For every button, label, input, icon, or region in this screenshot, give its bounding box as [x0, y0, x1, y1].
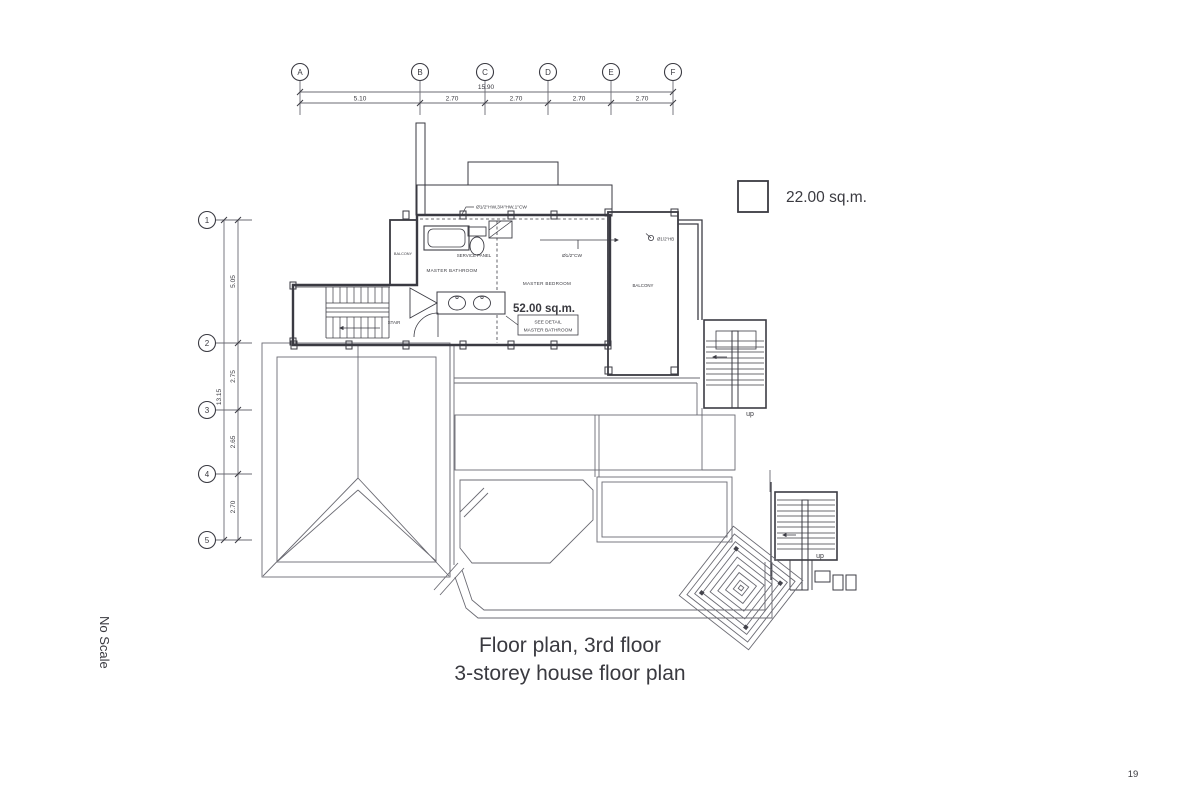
grid-bubble-A: A [292, 64, 309, 81]
planter [833, 575, 843, 590]
drawing-title: Floor plan, 3rd floor [479, 634, 661, 657]
grid-bubble-1: 1 [199, 212, 216, 229]
floor-plan-svg: A B C D E F 15.90 5.10 2.70 2.70 2.70 2.… [0, 0, 1200, 800]
dim-col: 2.70 [446, 96, 459, 103]
room-labels: MASTER BATHROOM SERVICE PANEL MASTER BED… [388, 252, 654, 325]
grid-bubble-4: 4 [199, 466, 216, 483]
planter [846, 575, 856, 590]
grid-bubble-5: 5 [199, 532, 216, 549]
up-label: up [746, 411, 754, 418]
stair-tower-lower: up [771, 482, 856, 590]
grid-bubble-B: B [412, 64, 429, 81]
lower-floor-outline [262, 343, 772, 618]
stair-stringer [732, 331, 738, 408]
up-label: up [816, 553, 824, 560]
room-label-balcony-right: BALCONY [633, 283, 654, 288]
stair-stringer [802, 500, 808, 590]
stair-tower-upper: up [678, 220, 766, 418]
sink [474, 296, 491, 310]
see-detail-line2: MASTER BATHROOM [524, 328, 573, 334]
drawing-subtitle: 3-storey house floor plan [454, 662, 685, 685]
dim-col: 5.10 [354, 96, 367, 103]
pyramid-skylight [679, 526, 803, 650]
dim-row: 5.05 [230, 275, 237, 288]
sink [449, 296, 466, 310]
legend-swatch [738, 181, 768, 212]
grid-column-label: C [482, 68, 488, 77]
pipe-cw-label: Ø1/2"CW [562, 253, 583, 259]
room-label-master-bathroom: MASTER BATHROOM [426, 268, 477, 273]
toilet-tank [468, 227, 486, 236]
bathroom-fixtures [410, 219, 605, 343]
grid-column-label: E [608, 68, 613, 77]
grid-column-label: F [671, 68, 676, 77]
bedroom-area-value: 52.00 sq.m. [513, 303, 575, 315]
grid-row-label: 5 [205, 536, 210, 545]
grid-bubble-C: C [477, 64, 494, 81]
third-floor-area [293, 215, 610, 345]
grid-row-label: 1 [205, 216, 210, 225]
dim-col: 2.70 [636, 96, 649, 103]
dim-col: 2.70 [510, 96, 523, 103]
planter [815, 571, 830, 582]
roof-elements [416, 123, 612, 215]
stair-main [295, 287, 390, 338]
scale-note: No Scale [97, 616, 112, 669]
dim-total-height: 13.15 [216, 388, 223, 405]
hose-bib-label: Ø1/2"HB [657, 237, 674, 242]
legend-area-value: 22.00 sq.m. [786, 189, 867, 206]
see-detail-line1: SEE DETAIL [534, 320, 562, 326]
row-grid: 1 2 3 4 5 5.05 2.75 2.65 2.70 13.15 [199, 212, 253, 549]
grid-bubble-3: 3 [199, 402, 216, 419]
room-label-service-panel: SERVICE PANEL [457, 253, 492, 258]
grid-bubble-F: F [665, 64, 682, 81]
grid-column-label: D [545, 68, 551, 77]
grid-bubble-2: 2 [199, 335, 216, 352]
legend: 22.00 sq.m. [738, 181, 867, 212]
grid-row-label: 2 [205, 339, 210, 348]
drawing-sheet: A B C D E F 15.90 5.10 2.70 2.70 2.70 2.… [0, 0, 1200, 800]
room-label-balcony-left: BALCONY [394, 252, 413, 256]
dim-col: 2.70 [573, 96, 586, 103]
see-detail-callout: SEE DETAIL MASTER BATHROOM [506, 315, 578, 335]
pipe-main-label: Ø1/2"HW,3/4"HW,1"CW [476, 205, 527, 211]
vanity-counter [437, 292, 505, 314]
page-number: 19 [1128, 769, 1139, 780]
dim-row: 2.65 [230, 435, 237, 448]
grid-bubble-D: D [540, 64, 557, 81]
dim-row: 2.70 [230, 500, 237, 513]
grid-column-label: A [297, 68, 303, 77]
dim-row: 2.75 [230, 370, 237, 383]
column-grid: A B C D E F 15.90 5.10 2.70 2.70 2.70 2.… [292, 64, 682, 116]
door-swing [414, 313, 438, 337]
grid-column-label: B [417, 68, 422, 77]
grid-row-label: 3 [205, 406, 210, 415]
dim-total-width: 15.90 [478, 84, 495, 91]
grid-bubble-E: E [603, 64, 620, 81]
room-label-stair: STAIR [388, 320, 401, 325]
room-label-master-bedroom: MASTER BEDROOM [523, 281, 571, 286]
grid-row-label: 4 [205, 470, 210, 479]
